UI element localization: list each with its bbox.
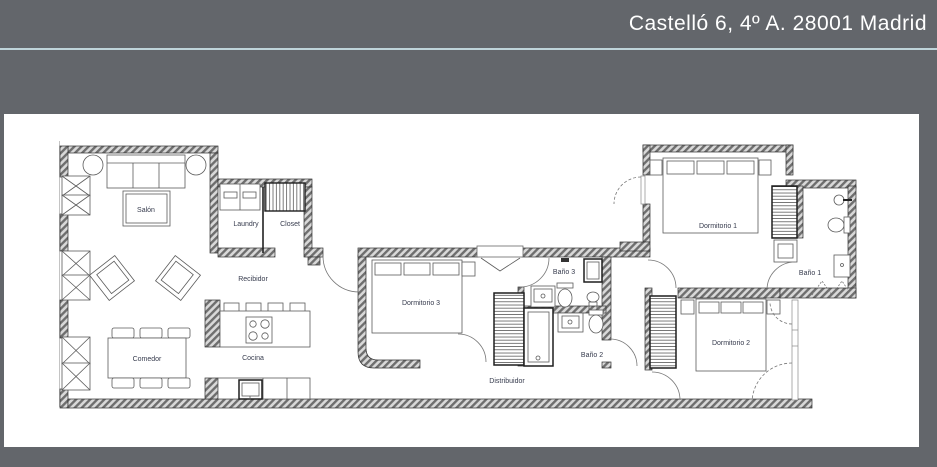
shower-bano-3 bbox=[584, 259, 602, 282]
door-arc-dormitorio-2 bbox=[652, 372, 680, 400]
page: { "header": { "title": "Castelló 6, 4º A… bbox=[0, 0, 937, 467]
armchair-right bbox=[156, 256, 201, 301]
nightstand bbox=[462, 262, 475, 276]
sofa bbox=[107, 155, 185, 188]
shower-bano-2 bbox=[524, 308, 553, 366]
room-label-distribuidor: Distribuidor bbox=[489, 378, 525, 385]
laundry-furniture bbox=[220, 183, 305, 253]
floor-plan: Salón Laundry Closet Recibidor Comedor C… bbox=[0, 0, 937, 467]
toilet-bano-2 bbox=[589, 310, 603, 333]
door-arc-bano-1 bbox=[767, 262, 795, 290]
side-table-round-left bbox=[83, 155, 103, 175]
room-label-dormitorio-3: Dormitorio 3 bbox=[402, 300, 440, 307]
washer-dryer bbox=[220, 184, 260, 210]
shelf bbox=[561, 258, 569, 262]
room-label-recibidor: Recibidor bbox=[238, 276, 268, 283]
bano3-fixtures bbox=[520, 258, 602, 312]
chair bbox=[112, 328, 134, 338]
kitchen-counter bbox=[218, 378, 310, 400]
toilet-bano-3 bbox=[557, 283, 573, 307]
room-label-closet: Closet bbox=[280, 221, 300, 228]
vanity-bano-1 bbox=[834, 255, 850, 277]
room-label-dormitorio-2: Dormitorio 2 bbox=[712, 340, 750, 347]
window-unit-2 bbox=[62, 251, 90, 300]
sink-bano-3 bbox=[531, 286, 555, 307]
chair bbox=[140, 328, 162, 338]
room-label-comedor: Comedor bbox=[133, 356, 162, 363]
entrance-door-arc bbox=[323, 256, 359, 292]
window-unit-1 bbox=[62, 176, 90, 215]
chair bbox=[168, 378, 190, 388]
room-label-dormitorio-1: Dormitorio 1 bbox=[699, 223, 737, 230]
room-label-laundry: Laundry bbox=[233, 221, 259, 228]
room-label-bano-3: Baño 3 bbox=[553, 269, 575, 276]
door-arc-dormitorio-1 bbox=[648, 260, 676, 288]
side-table-round-right bbox=[186, 155, 206, 175]
bed-dormitorio-3 bbox=[372, 260, 462, 333]
cocina-furniture bbox=[205, 300, 310, 400]
kitchen-sink bbox=[239, 380, 262, 400]
chair bbox=[140, 378, 162, 388]
door-arc-bano-2 bbox=[610, 339, 637, 366]
chair bbox=[168, 328, 190, 338]
balcony-window bbox=[641, 176, 645, 204]
dormitorio2-furniture bbox=[650, 296, 798, 403]
distribuidor-wardrobe bbox=[494, 293, 524, 365]
nightstand bbox=[759, 160, 771, 175]
window-shutters bbox=[62, 176, 90, 390]
nightstand bbox=[681, 300, 694, 314]
armchair-left bbox=[90, 256, 135, 301]
door-arc-bano-3 bbox=[520, 258, 549, 287]
wardrobe-dormitorio-2 bbox=[650, 296, 676, 368]
sink-bano-2 bbox=[558, 313, 583, 332]
bed-dormitorio-2 bbox=[696, 299, 766, 371]
door-arc-dormitorio-3 bbox=[458, 334, 486, 362]
kitchen-island bbox=[220, 303, 310, 347]
top-wall-vent bbox=[477, 246, 523, 271]
room-label-bano-2: Baño 2 bbox=[581, 352, 603, 359]
room-label-cocina: Cocina bbox=[242, 355, 264, 362]
toilet-bano-1 bbox=[828, 217, 850, 233]
salon-furniture bbox=[83, 155, 206, 300]
room-label-salon: Salón bbox=[137, 207, 155, 214]
nightstand bbox=[767, 300, 780, 314]
chair bbox=[112, 378, 134, 388]
closet-rod bbox=[265, 183, 305, 211]
balcony-window-dorm2 bbox=[792, 300, 798, 400]
wardrobe-dormitorio-1 bbox=[772, 186, 797, 262]
bed-dormitorio-1 bbox=[663, 158, 758, 233]
nightstand bbox=[650, 160, 662, 175]
room-label-bano-1: Baño 1 bbox=[799, 270, 821, 277]
balcony-door-arc bbox=[614, 177, 641, 204]
window-unit-3 bbox=[62, 337, 90, 390]
